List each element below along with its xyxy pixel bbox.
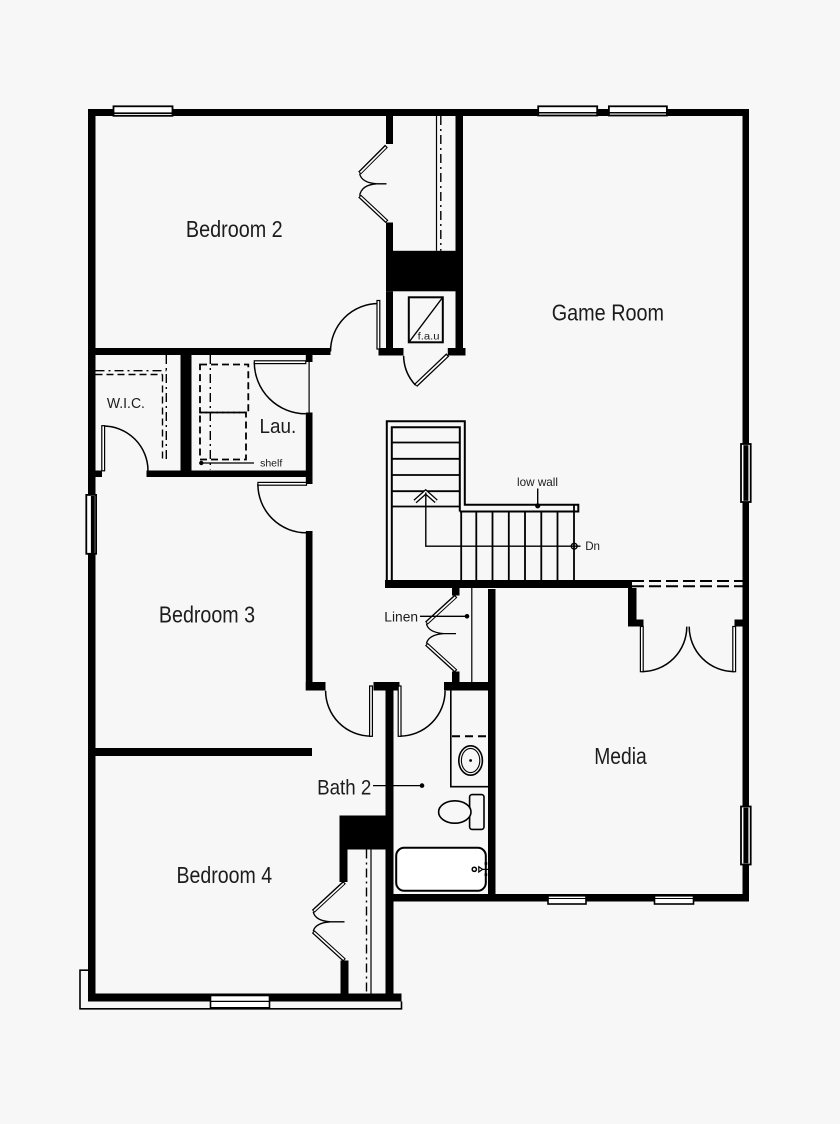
svg-text:shelf: shelf: [260, 458, 282, 470]
svg-text:Dn: Dn: [585, 540, 600, 553]
svg-text:low wall: low wall: [517, 476, 558, 489]
svg-text:f.a.u: f.a.u: [418, 332, 440, 343]
svg-text:Lau.: Lau.: [260, 415, 297, 438]
svg-text:Bedroom 2: Bedroom 2: [186, 216, 283, 242]
svg-text:Bedroom 4: Bedroom 4: [177, 862, 273, 888]
svg-text:Linen: Linen: [384, 610, 418, 625]
svg-text:Media: Media: [594, 743, 647, 769]
svg-text:W.I.C.: W.I.C.: [107, 396, 145, 412]
svg-text:Bath 2: Bath 2: [317, 777, 371, 800]
svg-text:Game Room: Game Room: [552, 300, 664, 326]
svg-text:Bedroom 3: Bedroom 3: [159, 601, 255, 627]
